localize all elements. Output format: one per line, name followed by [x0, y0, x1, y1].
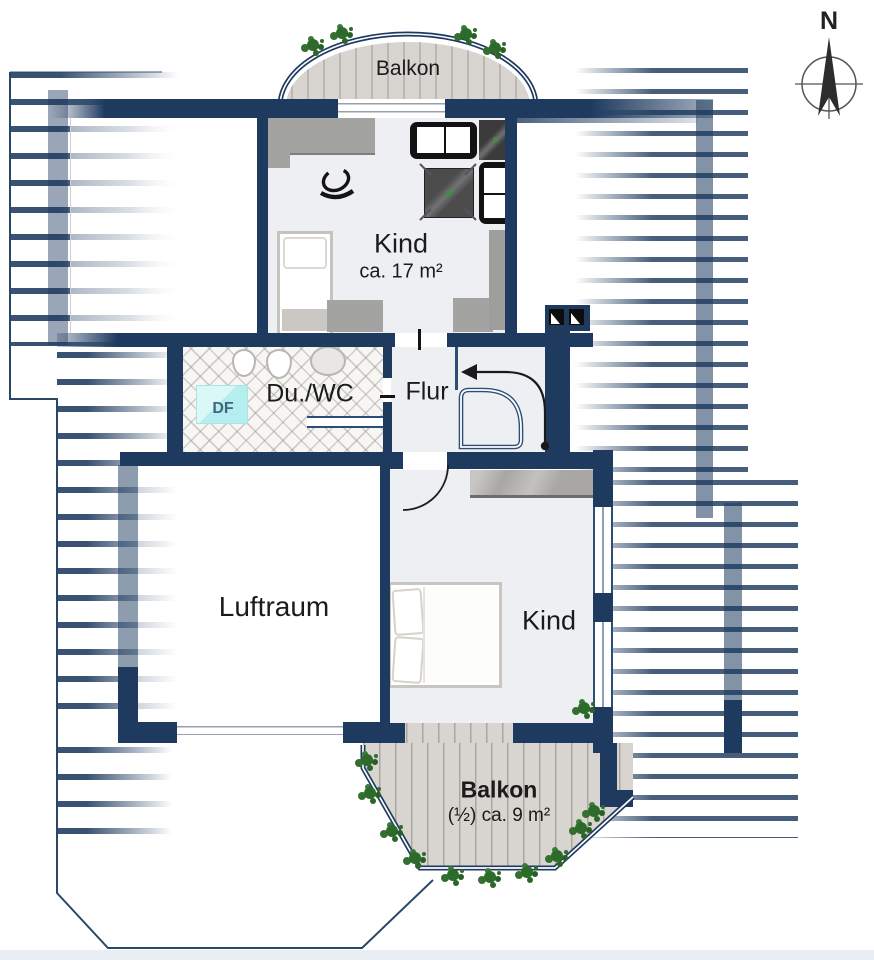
- wall-segment: [383, 347, 392, 378]
- plant-icon: [328, 21, 354, 45]
- pillow: [391, 636, 424, 684]
- wall-divider: [380, 465, 390, 743]
- balcony-bottom-label: Balkon: [461, 777, 538, 804]
- kind-bottom-window: [593, 622, 613, 707]
- wall-segment: [343, 722, 390, 743]
- wall-segment: [118, 722, 177, 743]
- balcony-door-window: [338, 99, 445, 118]
- wall-segment: [593, 593, 613, 622]
- compass-icon: N: [792, 2, 870, 130]
- balcony-bottom-area: (½) ca. 9 m²: [448, 805, 550, 827]
- door-opening-kind-bottom: [403, 452, 447, 469]
- wall-segment: [167, 347, 183, 465]
- plant-icon: [513, 860, 539, 884]
- shower-partition: [307, 416, 391, 428]
- room-area-kind-top: ca. 17 m²: [359, 261, 442, 284]
- room-label-duwc: Du./WC: [266, 380, 354, 409]
- compass-north-label: N: [820, 7, 838, 35]
- room-label-flur: Flur: [405, 378, 448, 407]
- pillow: [391, 588, 424, 636]
- hall-divider-line: [455, 347, 458, 390]
- plant-icon: [543, 844, 569, 868]
- room-label-luftraum: Luftraum: [219, 591, 330, 623]
- skylight-label: DF: [212, 400, 233, 418]
- plant-icon: [481, 36, 507, 60]
- roof-band: [696, 100, 713, 518]
- wall-step: [600, 743, 617, 807]
- desk: [327, 300, 383, 332]
- table: [424, 168, 474, 218]
- roof-band: [724, 503, 742, 705]
- bed: [277, 231, 333, 336]
- wall-segment: [383, 402, 392, 452]
- plant-icon: [299, 33, 325, 57]
- balcony-top-label: Balkon: [376, 57, 440, 80]
- wall-segment: [593, 450, 613, 507]
- door-opening-flur-kind: [395, 333, 447, 347]
- chimney-box: [545, 305, 590, 331]
- sofa: [410, 122, 477, 159]
- plant-icon: [570, 696, 596, 720]
- plant-icon: [439, 863, 465, 887]
- desk: [268, 113, 290, 168]
- sink-icon: [310, 346, 346, 376]
- room-label-kind-bottom: Kind: [522, 606, 576, 637]
- plant-icon: [401, 846, 427, 870]
- luftraum-window: [177, 722, 343, 735]
- wall-mid: [57, 333, 593, 347]
- plant-icon: [378, 819, 404, 843]
- pillow: [283, 237, 327, 269]
- door-tick: [418, 329, 421, 350]
- hatch-fade: [57, 747, 177, 835]
- plant-icon: [353, 748, 379, 772]
- floor-plan: Balkon N: [0, 0, 874, 960]
- wall-step: [617, 790, 633, 807]
- roof-band: [48, 90, 68, 345]
- wall-segment: [505, 118, 517, 333]
- wall-segment: [390, 723, 405, 743]
- room-attic-void: [70, 118, 258, 333]
- balcony-bottom-doorway-floor: [390, 723, 513, 743]
- hatch-fade: [575, 68, 748, 480]
- kind-bottom-window: [593, 507, 613, 593]
- bottom-strip: [0, 950, 874, 960]
- wall-segment: [257, 118, 268, 333]
- roof-band: [118, 465, 138, 667]
- plant-icon: [356, 781, 382, 805]
- wall-segment: [120, 452, 391, 466]
- wardrobe: [470, 470, 593, 498]
- door-tick: [380, 395, 395, 398]
- plant-icon: [476, 865, 502, 889]
- room-label-kind-top: Kind: [374, 229, 428, 260]
- desk: [453, 298, 493, 332]
- plant-icon: [580, 799, 606, 823]
- roof-band-solid: [724, 700, 742, 753]
- bed: [388, 582, 502, 688]
- wall-ridge-line: [517, 118, 697, 123]
- plant-icon: [452, 22, 478, 46]
